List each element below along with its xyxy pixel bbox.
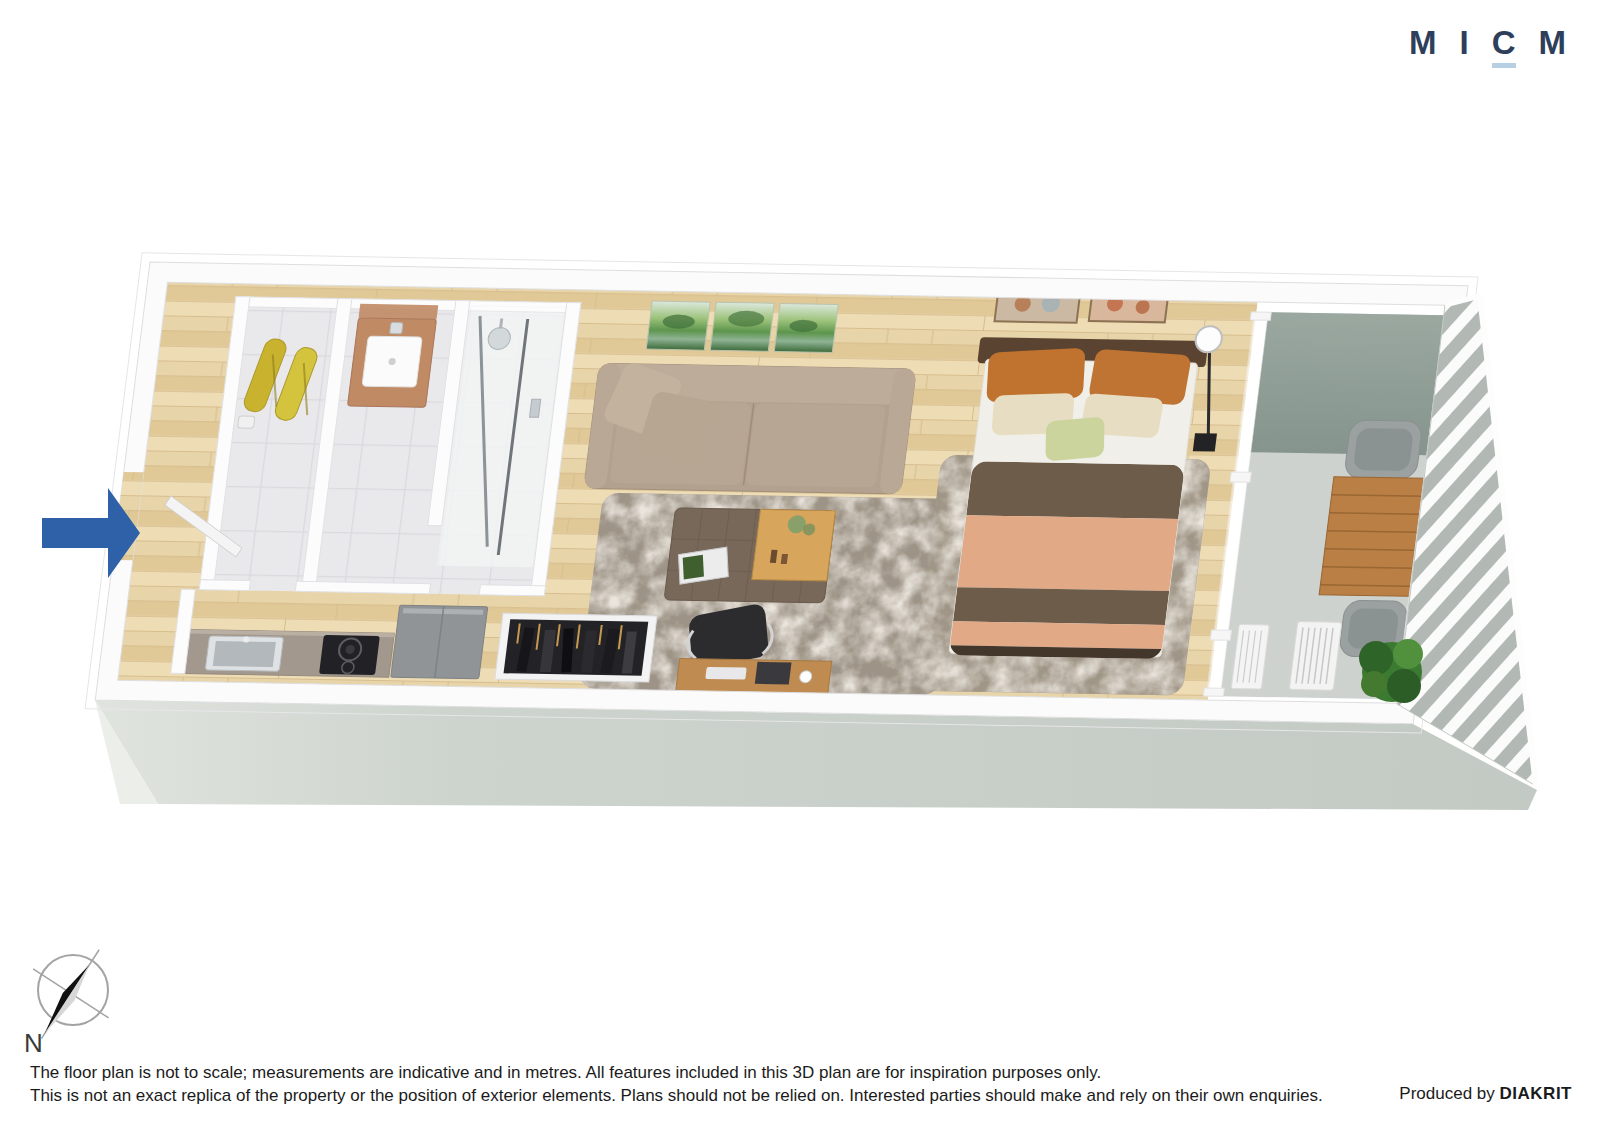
outdoor-chair: [1344, 420, 1423, 479]
page: M I C M: [0, 0, 1600, 1131]
vanity-sink: [348, 304, 439, 407]
floor-plan: [85, 253, 1478, 733]
wardrobe: [495, 613, 657, 682]
sofa: [584, 360, 917, 494]
green-pillow: [1045, 417, 1104, 462]
disclaimer-line-1: The floor plan is not to scale; measurem…: [30, 1061, 1323, 1084]
plant: [1359, 639, 1423, 703]
disclaimer-line-2: This is not an exact replica of the prop…: [30, 1084, 1323, 1107]
produced-by-label: Produced by: [1399, 1084, 1494, 1103]
disclaimer: The floor plan is not to scale; measurem…: [30, 1061, 1323, 1107]
compass-north-label: N: [24, 1028, 43, 1058]
producer-name: DIAKRIT: [1500, 1084, 1572, 1103]
cooktop: [319, 635, 380, 675]
triptych-painting: [646, 301, 838, 352]
compass-needle: [39, 961, 90, 1034]
ac-unit: [1289, 621, 1342, 690]
floor-plan-scene: N: [0, 0, 1600, 1131]
outdoor-table: [1319, 477, 1424, 597]
toilet-roll-holder: [238, 416, 256, 428]
striped-duvet: [949, 461, 1185, 659]
coffee-table-ottoman: [664, 508, 836, 603]
compass: N: [4, 925, 137, 1063]
produced-by: Produced by DIAKRIT: [1399, 1084, 1572, 1104]
